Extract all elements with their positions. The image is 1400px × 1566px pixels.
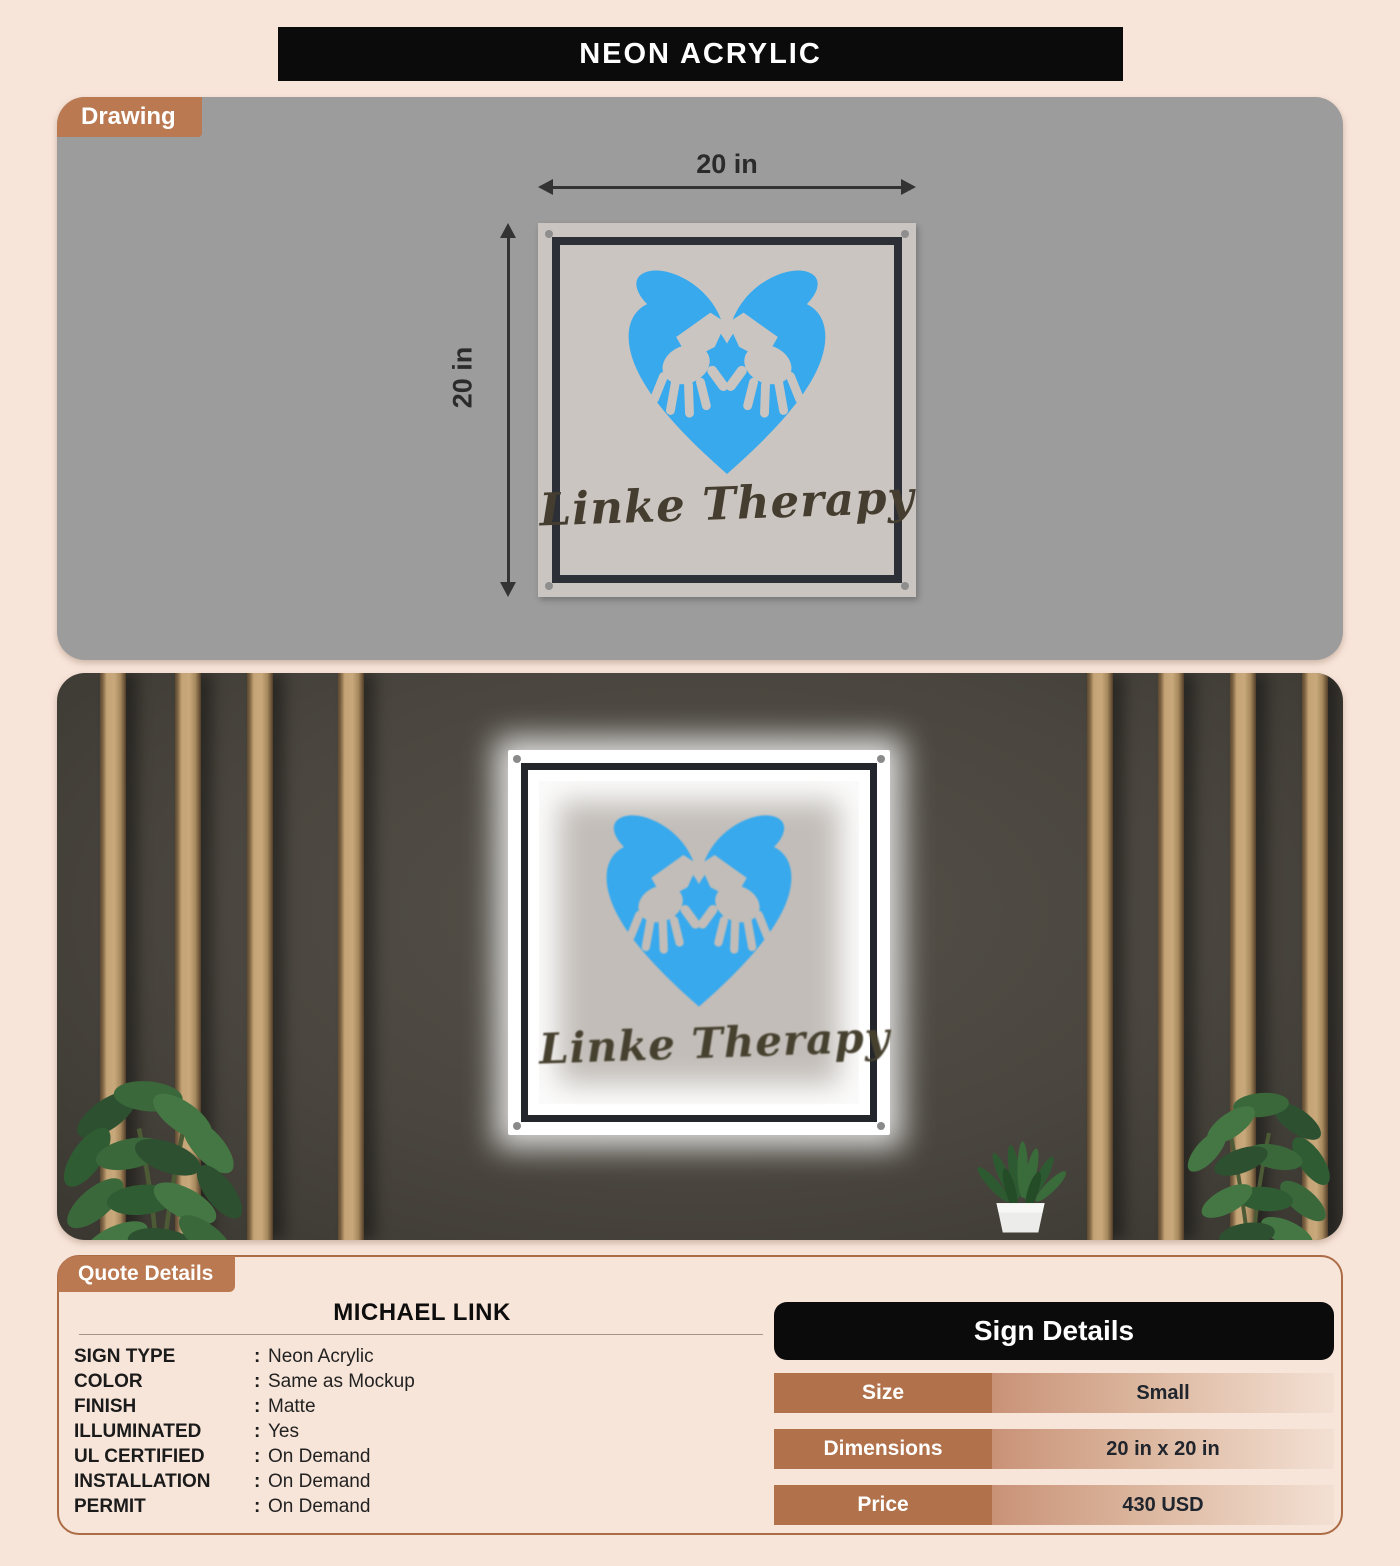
plant-right-icon (1149, 1063, 1343, 1240)
screw-icon (901, 582, 909, 590)
arrow-line (553, 186, 901, 189)
plant-left-icon (57, 1048, 277, 1240)
field-label: PERMIT (74, 1496, 254, 1518)
field-colon: : (254, 1496, 268, 1518)
field-value: Same as Mockup (268, 1371, 415, 1393)
screw-icon (877, 755, 885, 763)
field-colon: : (254, 1471, 268, 1493)
field-label: COLOR (74, 1371, 254, 1393)
sign-details-header: Sign Details (774, 1302, 1334, 1360)
height-dimension-label: 20 in (448, 328, 479, 428)
screw-icon (877, 1122, 885, 1130)
field-label: ILLUMINATED (74, 1421, 254, 1443)
field-label: INSTALLATION (74, 1471, 254, 1493)
brand-name-text: Linke Therapy (538, 1013, 860, 1073)
arrowhead-up-icon (500, 223, 516, 238)
screw-icon (901, 230, 909, 238)
arrowhead-down-icon (500, 582, 516, 597)
field-colon: : (254, 1396, 268, 1418)
brand-logo-heart-hands-icon (573, 799, 825, 1017)
arrowhead-left-icon (538, 179, 553, 195)
quote-field-illuminated: ILLUMINATED : Yes (74, 1419, 764, 1444)
row-label: Price (774, 1485, 992, 1525)
page-title: NEON ACRYLIC (278, 27, 1123, 81)
field-colon: : (254, 1446, 268, 1468)
width-dimension-label: 20 in (538, 149, 916, 180)
quote-details-section: Quote Details MICHAEL LINK SIGN TYPE : N… (57, 1255, 1343, 1535)
field-label: FINISH (74, 1396, 254, 1418)
row-value: 430 USD (992, 1485, 1334, 1525)
field-colon: : (254, 1346, 268, 1368)
quote-details-tab: Quote Details (58, 1256, 235, 1292)
arrow-line (507, 238, 510, 582)
drawing-tab: Drawing (57, 97, 202, 137)
quote-field-sign-type: SIGN TYPE : Neon Acrylic (74, 1344, 764, 1369)
quote-field-finish: FINISH : Matte (74, 1394, 764, 1419)
field-value: Matte (268, 1396, 316, 1418)
quote-field-permit: PERMIT : On Demand (74, 1494, 764, 1519)
row-value: 20 in x 20 in (992, 1429, 1334, 1469)
quote-fields-list: SIGN TYPE : Neon Acrylic COLOR : Same as… (74, 1344, 764, 1519)
arrowhead-right-icon (901, 179, 916, 195)
table-row-price: Price 430 USD (774, 1485, 1334, 1525)
table-row-dimensions: Dimensions 20 in x 20 in (774, 1429, 1334, 1469)
height-arrow-icon (500, 223, 516, 597)
sign-face: Linke Therapy (539, 781, 859, 1104)
field-colon: : (254, 1421, 268, 1443)
screw-icon (513, 1122, 521, 1130)
table-row-size: Size Small (774, 1373, 1334, 1413)
field-value: On Demand (268, 1471, 370, 1493)
quote-field-ul-certified: UL CERTIFIED : On Demand (74, 1444, 764, 1469)
sign-drawing: Linke Therapy (538, 223, 916, 597)
quote-field-color: COLOR : Same as Mockup (74, 1369, 764, 1394)
quote-field-installation: INSTALLATION : On Demand (74, 1469, 764, 1494)
brand-logo-heart-hands-icon (593, 253, 861, 485)
sign-frame: Linke Therapy (521, 763, 877, 1122)
field-value: Yes (268, 1421, 299, 1443)
divider (79, 1334, 763, 1335)
screw-icon (513, 755, 521, 763)
field-label: UL CERTIFIED (74, 1446, 254, 1468)
screw-icon (545, 582, 553, 590)
wood-slat (1087, 673, 1113, 1240)
row-label: Size (774, 1373, 992, 1413)
row-value: Small (992, 1373, 1334, 1413)
sign-details-table: Sign Details Size Small Dimensions 20 in… (774, 1302, 1334, 1360)
row-label: Dimensions (774, 1429, 992, 1469)
field-value: On Demand (268, 1446, 370, 1468)
customer-name: MICHAEL LINK (77, 1299, 767, 1327)
drawing-section: Drawing 20 in 20 in (57, 97, 1343, 660)
sign-mockup-illuminated: Linke Therapy (508, 750, 890, 1135)
potted-plant-icon (962, 1130, 1077, 1238)
mockup-section: Linke Therapy (57, 673, 1343, 1240)
field-value: On Demand (268, 1496, 370, 1518)
field-label: SIGN TYPE (74, 1346, 254, 1368)
field-colon: : (254, 1371, 268, 1393)
field-value: Neon Acrylic (268, 1346, 374, 1368)
wood-slat (338, 673, 364, 1240)
width-arrow-icon (538, 179, 916, 195)
